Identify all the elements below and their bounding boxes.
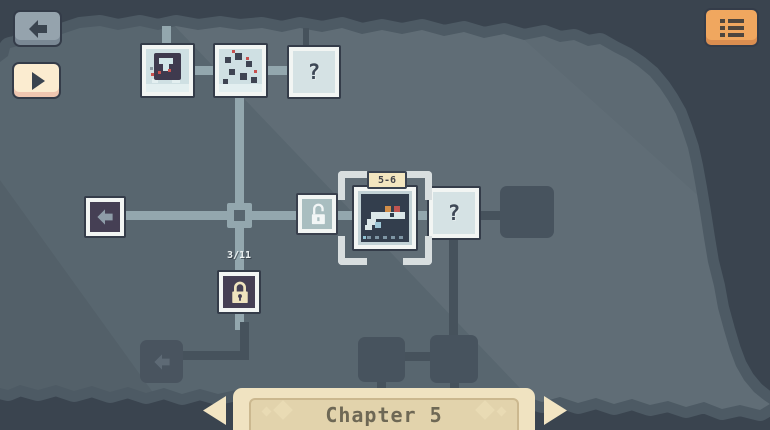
level-thumbnail [219, 49, 262, 92]
level-node-top-unknown[interactable]: ? [287, 45, 341, 99]
chapter-banner: Chapter 5 [233, 388, 535, 430]
level-node-right-unknown[interactable]: ? [427, 186, 481, 240]
play-icon [24, 68, 50, 94]
play-button[interactable] [12, 62, 61, 99]
level-list-menu-button[interactable] [704, 8, 759, 47]
arrow-left-icon [94, 206, 116, 228]
selected-thumbnail-mat [358, 191, 412, 245]
exit-bottom-left-node [140, 340, 183, 383]
hidden-node-right [500, 186, 554, 238]
level-number: 5-6 [378, 175, 396, 186]
padlock-open-icon [302, 199, 332, 229]
hidden-node-bottom-2 [430, 335, 478, 383]
list-menu-icon [717, 16, 747, 40]
arrow-left-icon [151, 351, 173, 373]
gate-progress-value: 3/11 [227, 250, 251, 261]
level-node-selected[interactable] [352, 185, 418, 251]
unlock-marker-node [296, 193, 338, 235]
unknown-level-art: ? [293, 51, 335, 93]
gate-lock-node [217, 270, 261, 314]
padlock-closed-art [223, 276, 255, 308]
question-mark: ? [448, 203, 461, 224]
question-mark: ? [308, 62, 321, 83]
selected-level-label: 5-6 [367, 171, 407, 189]
padlock-open-art [302, 199, 332, 229]
unknown-level-art: ? [433, 192, 475, 234]
level-thumbnail [361, 194, 409, 242]
chapter-title: Chapter 5 [325, 403, 442, 427]
path-junction [227, 203, 252, 228]
chapter-exit-left-node[interactable] [84, 196, 126, 238]
gate-progress-label: 3/11 [213, 250, 265, 261]
padlock-closed-icon [223, 276, 255, 308]
arrow-left-icon [25, 16, 51, 42]
hidden-node-bottom-1 [358, 337, 405, 382]
level-thumbnail [146, 49, 189, 92]
chapter-map-screen: ? [0, 0, 770, 430]
level-node-top-1[interactable] [140, 43, 195, 98]
level-node-top-2[interactable] [213, 43, 268, 98]
exit-art [90, 202, 120, 232]
back-button[interactable] [13, 10, 62, 47]
